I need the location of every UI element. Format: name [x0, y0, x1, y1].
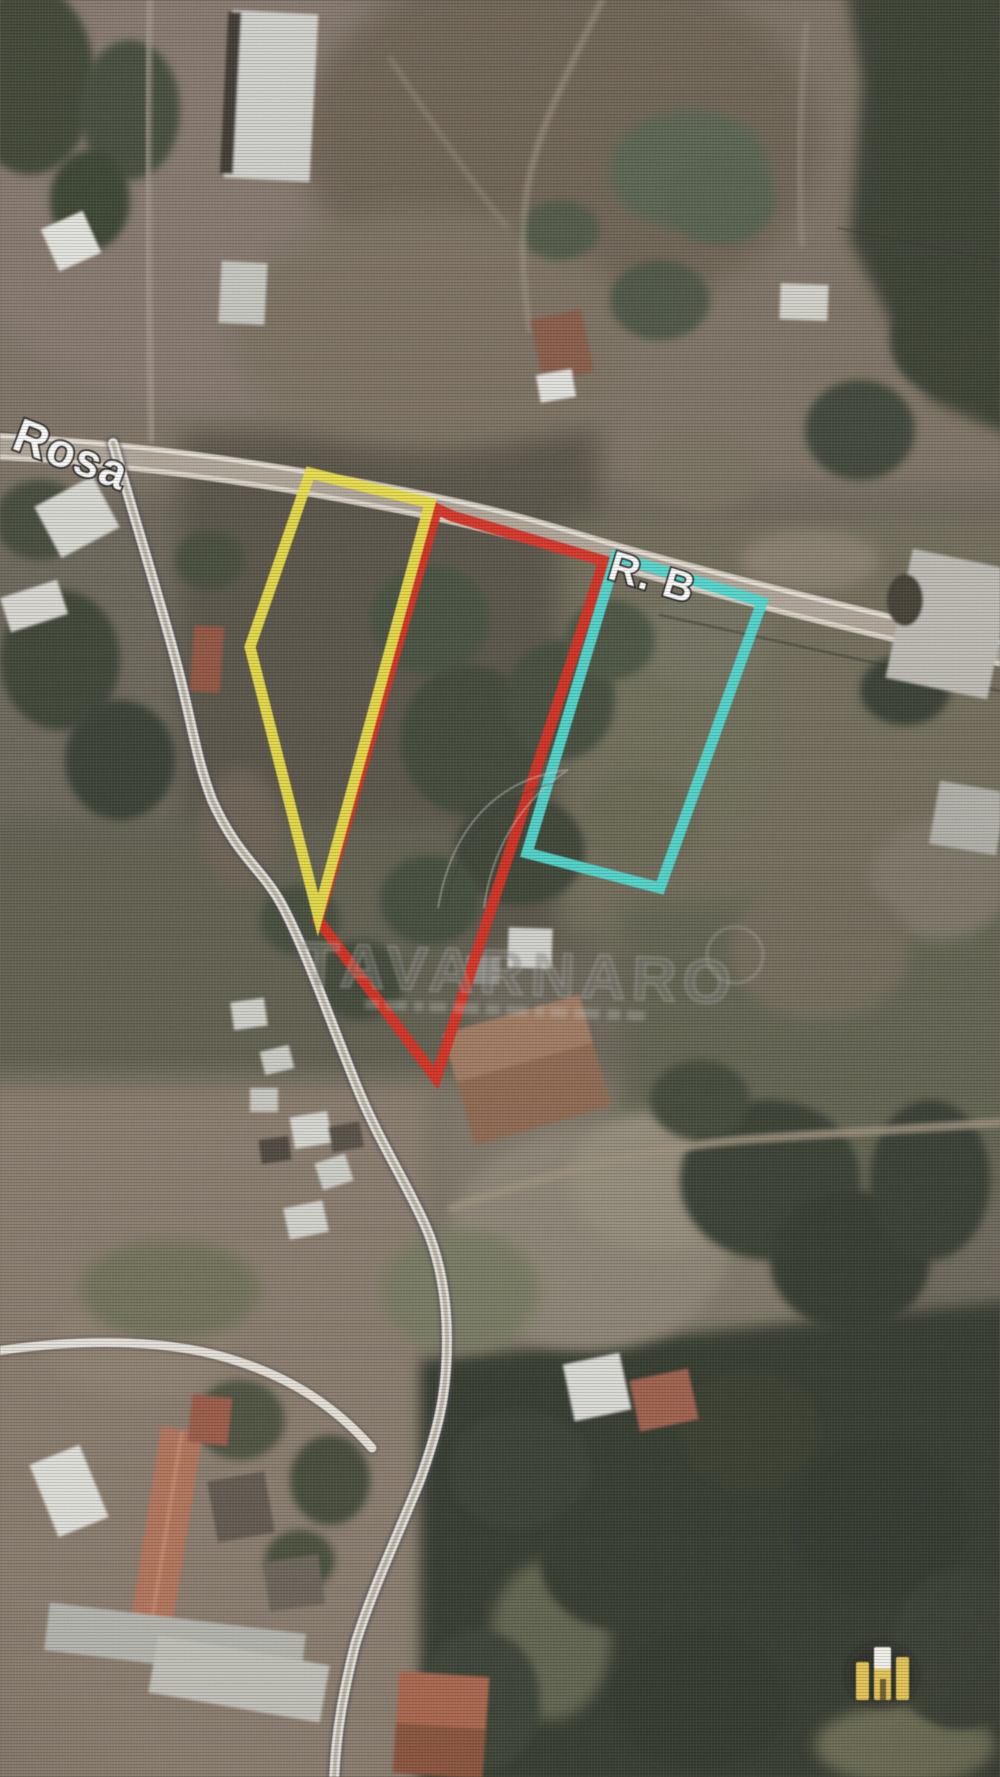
listing-photo: Rosa R. B TAVARNARO [0, 0, 1000, 1777]
grain-overlay [0, 0, 1000, 1777]
satellite-map-image: Rosa R. B TAVARNARO [0, 0, 1000, 1777]
